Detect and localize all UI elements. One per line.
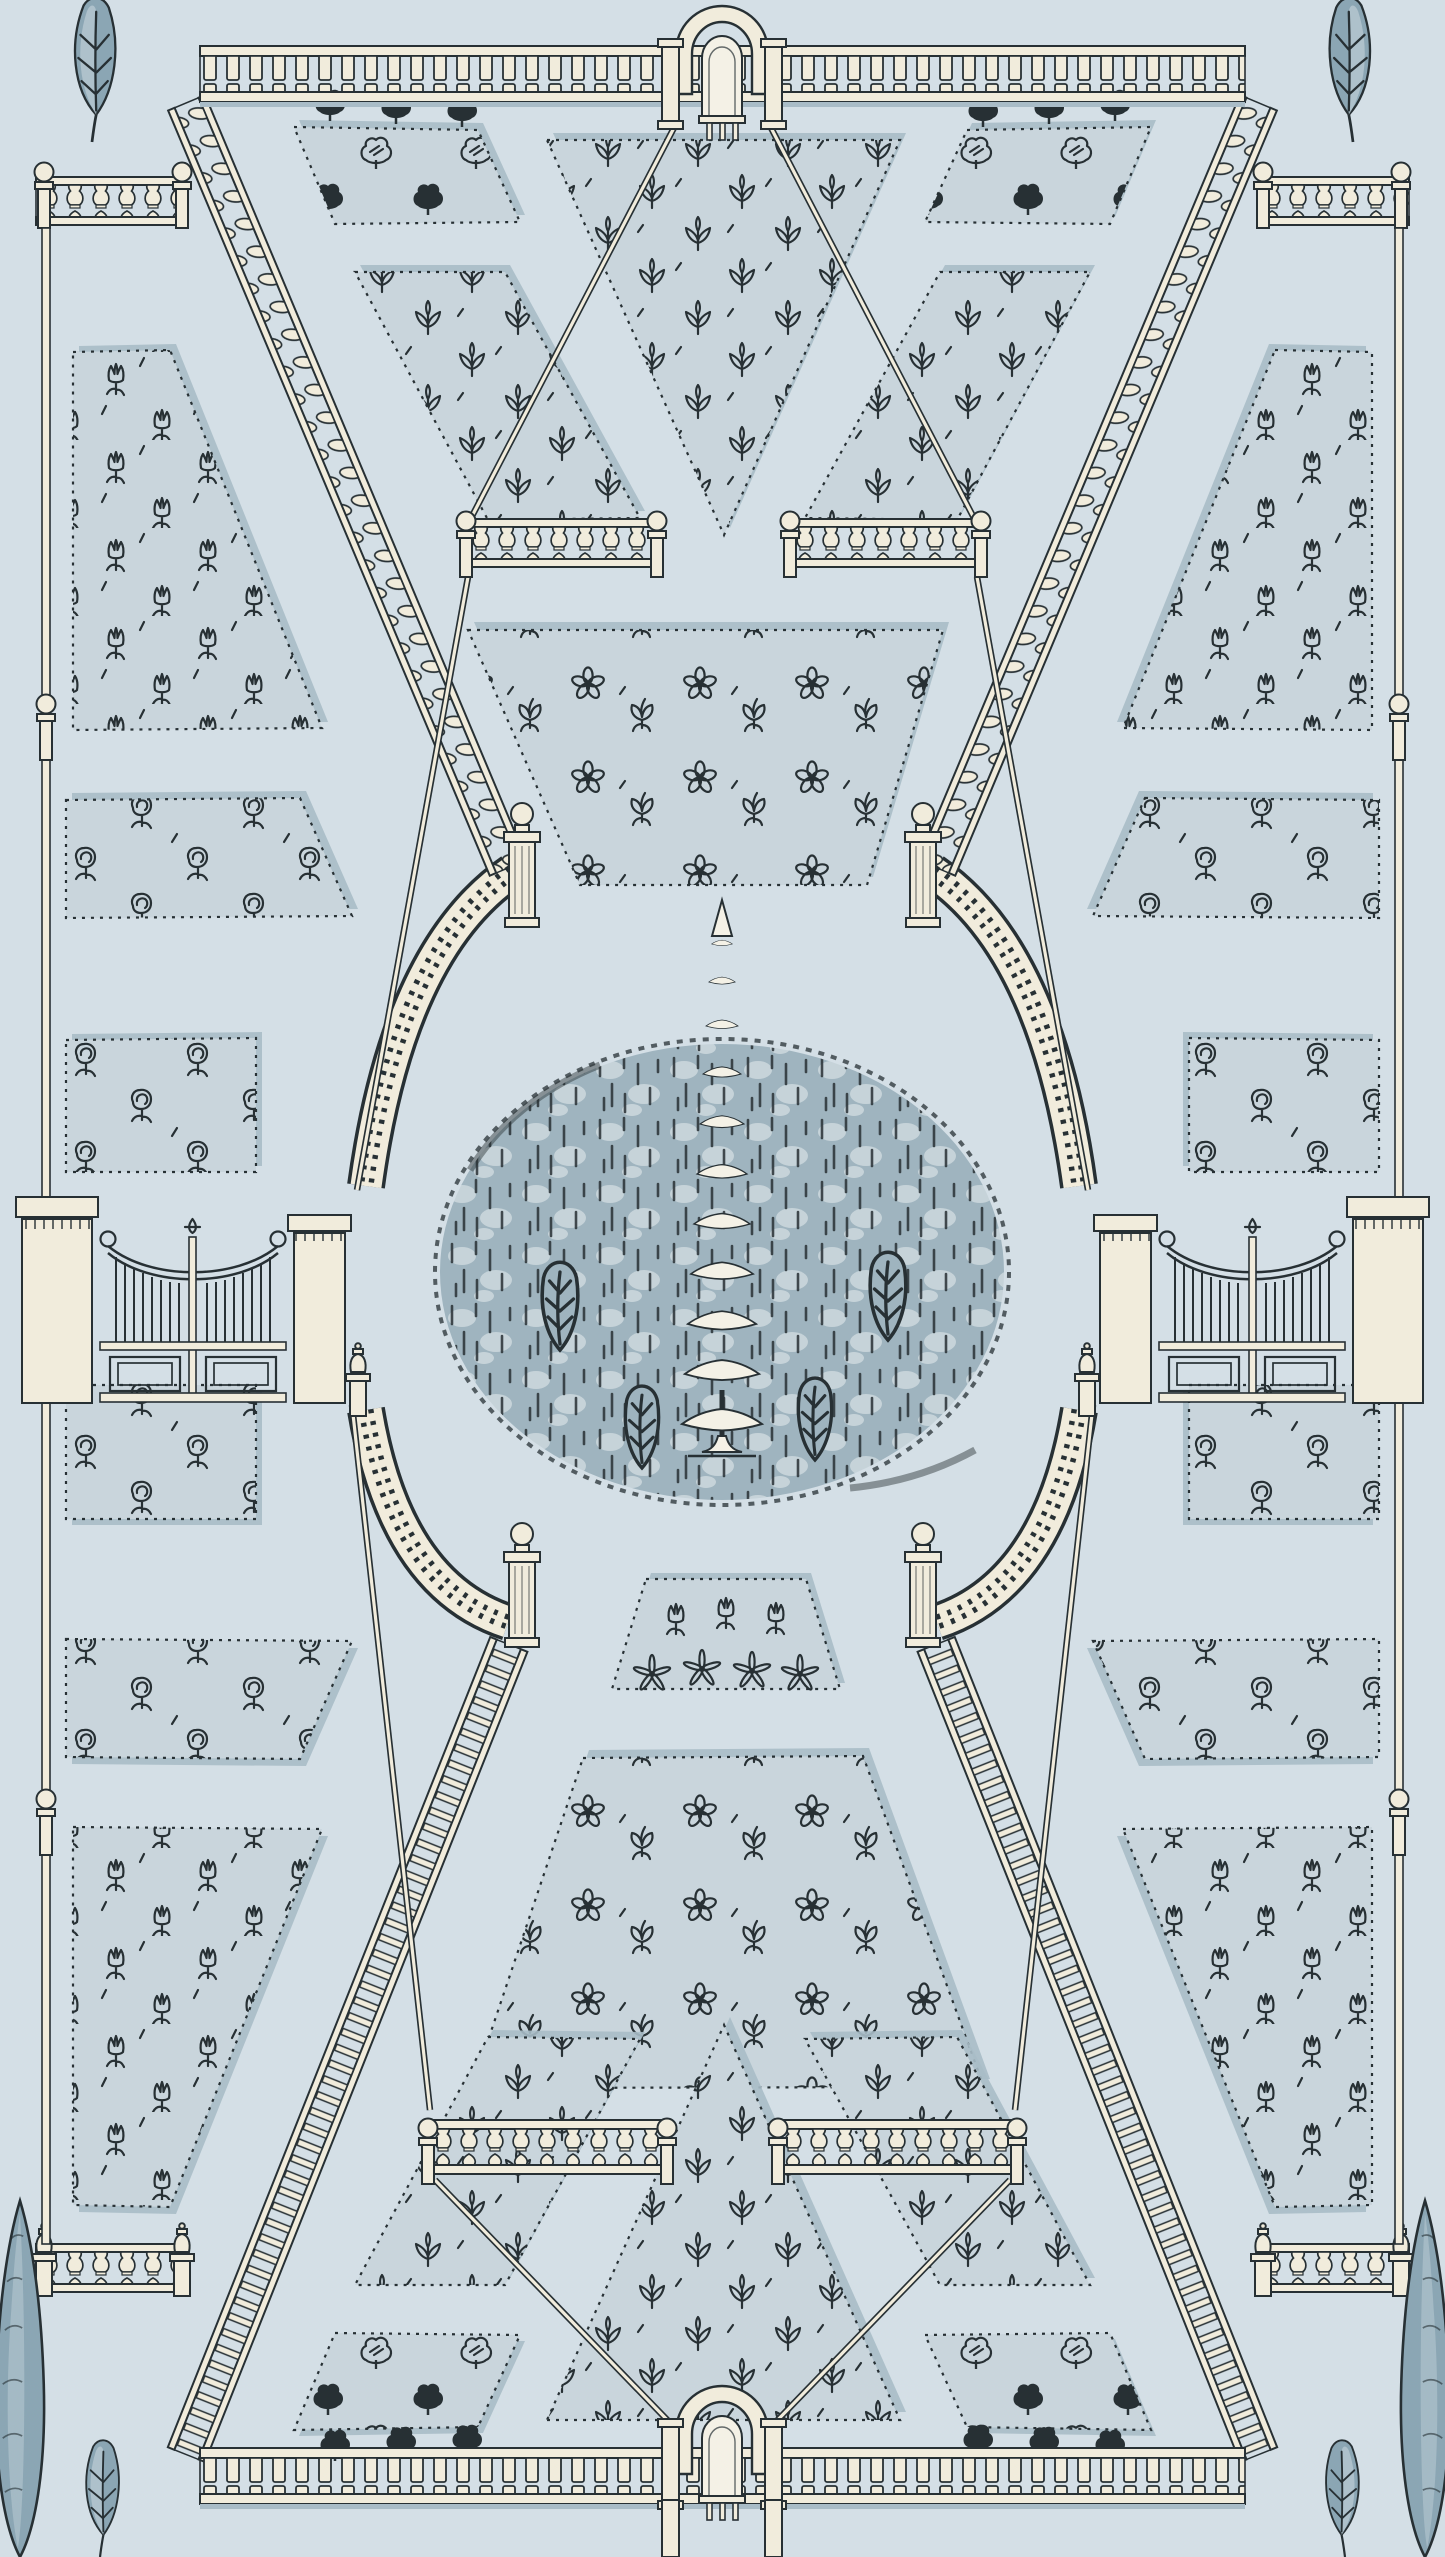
bed-rose-small-right: [1183, 1032, 1379, 1172]
bed-rose2-left: [66, 1639, 358, 1766]
bed-rose-small2-right: [1183, 1385, 1379, 1525]
bed-rose-right: [1087, 791, 1379, 918]
garden-parterre-wallpaper: [0, 0, 1445, 2557]
balustrade-corner-bottom-right: [1259, 2244, 1409, 2292]
balustrade-mid-bottom-left: [430, 2120, 665, 2174]
balustrade-corner-top-left: [36, 177, 186, 225]
ball-finial-post: [457, 512, 476, 578]
bed-rose-small-left: [66, 1032, 262, 1172]
balustrade-mid-top-right: [792, 519, 977, 567]
ball-finial-post: [1254, 163, 1273, 229]
balustrade-mid-top-left: [468, 519, 653, 567]
ball-finial-post: [769, 2119, 788, 2185]
bed-small-center: [612, 1573, 845, 1691]
garden-plan-scene: [0, 0, 1445, 2557]
ball-finial-post: [972, 512, 991, 578]
ball-finial-post: [1390, 1790, 1409, 1856]
ball-finial-post: [1008, 2119, 1027, 2185]
balustrade-mid-bottom-right: [780, 2120, 1015, 2174]
ball-finial-post: [35, 163, 54, 229]
ball-finial-post: [173, 163, 192, 229]
bed-rose2-right: [1087, 1639, 1379, 1766]
ball-finial-post: [658, 2119, 677, 2185]
ball-finial-post: [419, 2119, 438, 2185]
balustrade-corner-bottom-left: [36, 2244, 186, 2292]
ball-finial-post: [37, 1790, 56, 1856]
balustrade-corner-top-right: [1259, 177, 1409, 225]
bed-rose-left: [66, 791, 358, 918]
bed-rose-small2-left: [66, 1385, 262, 1525]
ball-finial-post: [648, 512, 667, 578]
ball-finial-post: [1390, 695, 1409, 761]
ball-finial-post: [37, 695, 56, 761]
ball-finial-post: [781, 512, 800, 578]
ball-finial-post: [1392, 163, 1411, 229]
